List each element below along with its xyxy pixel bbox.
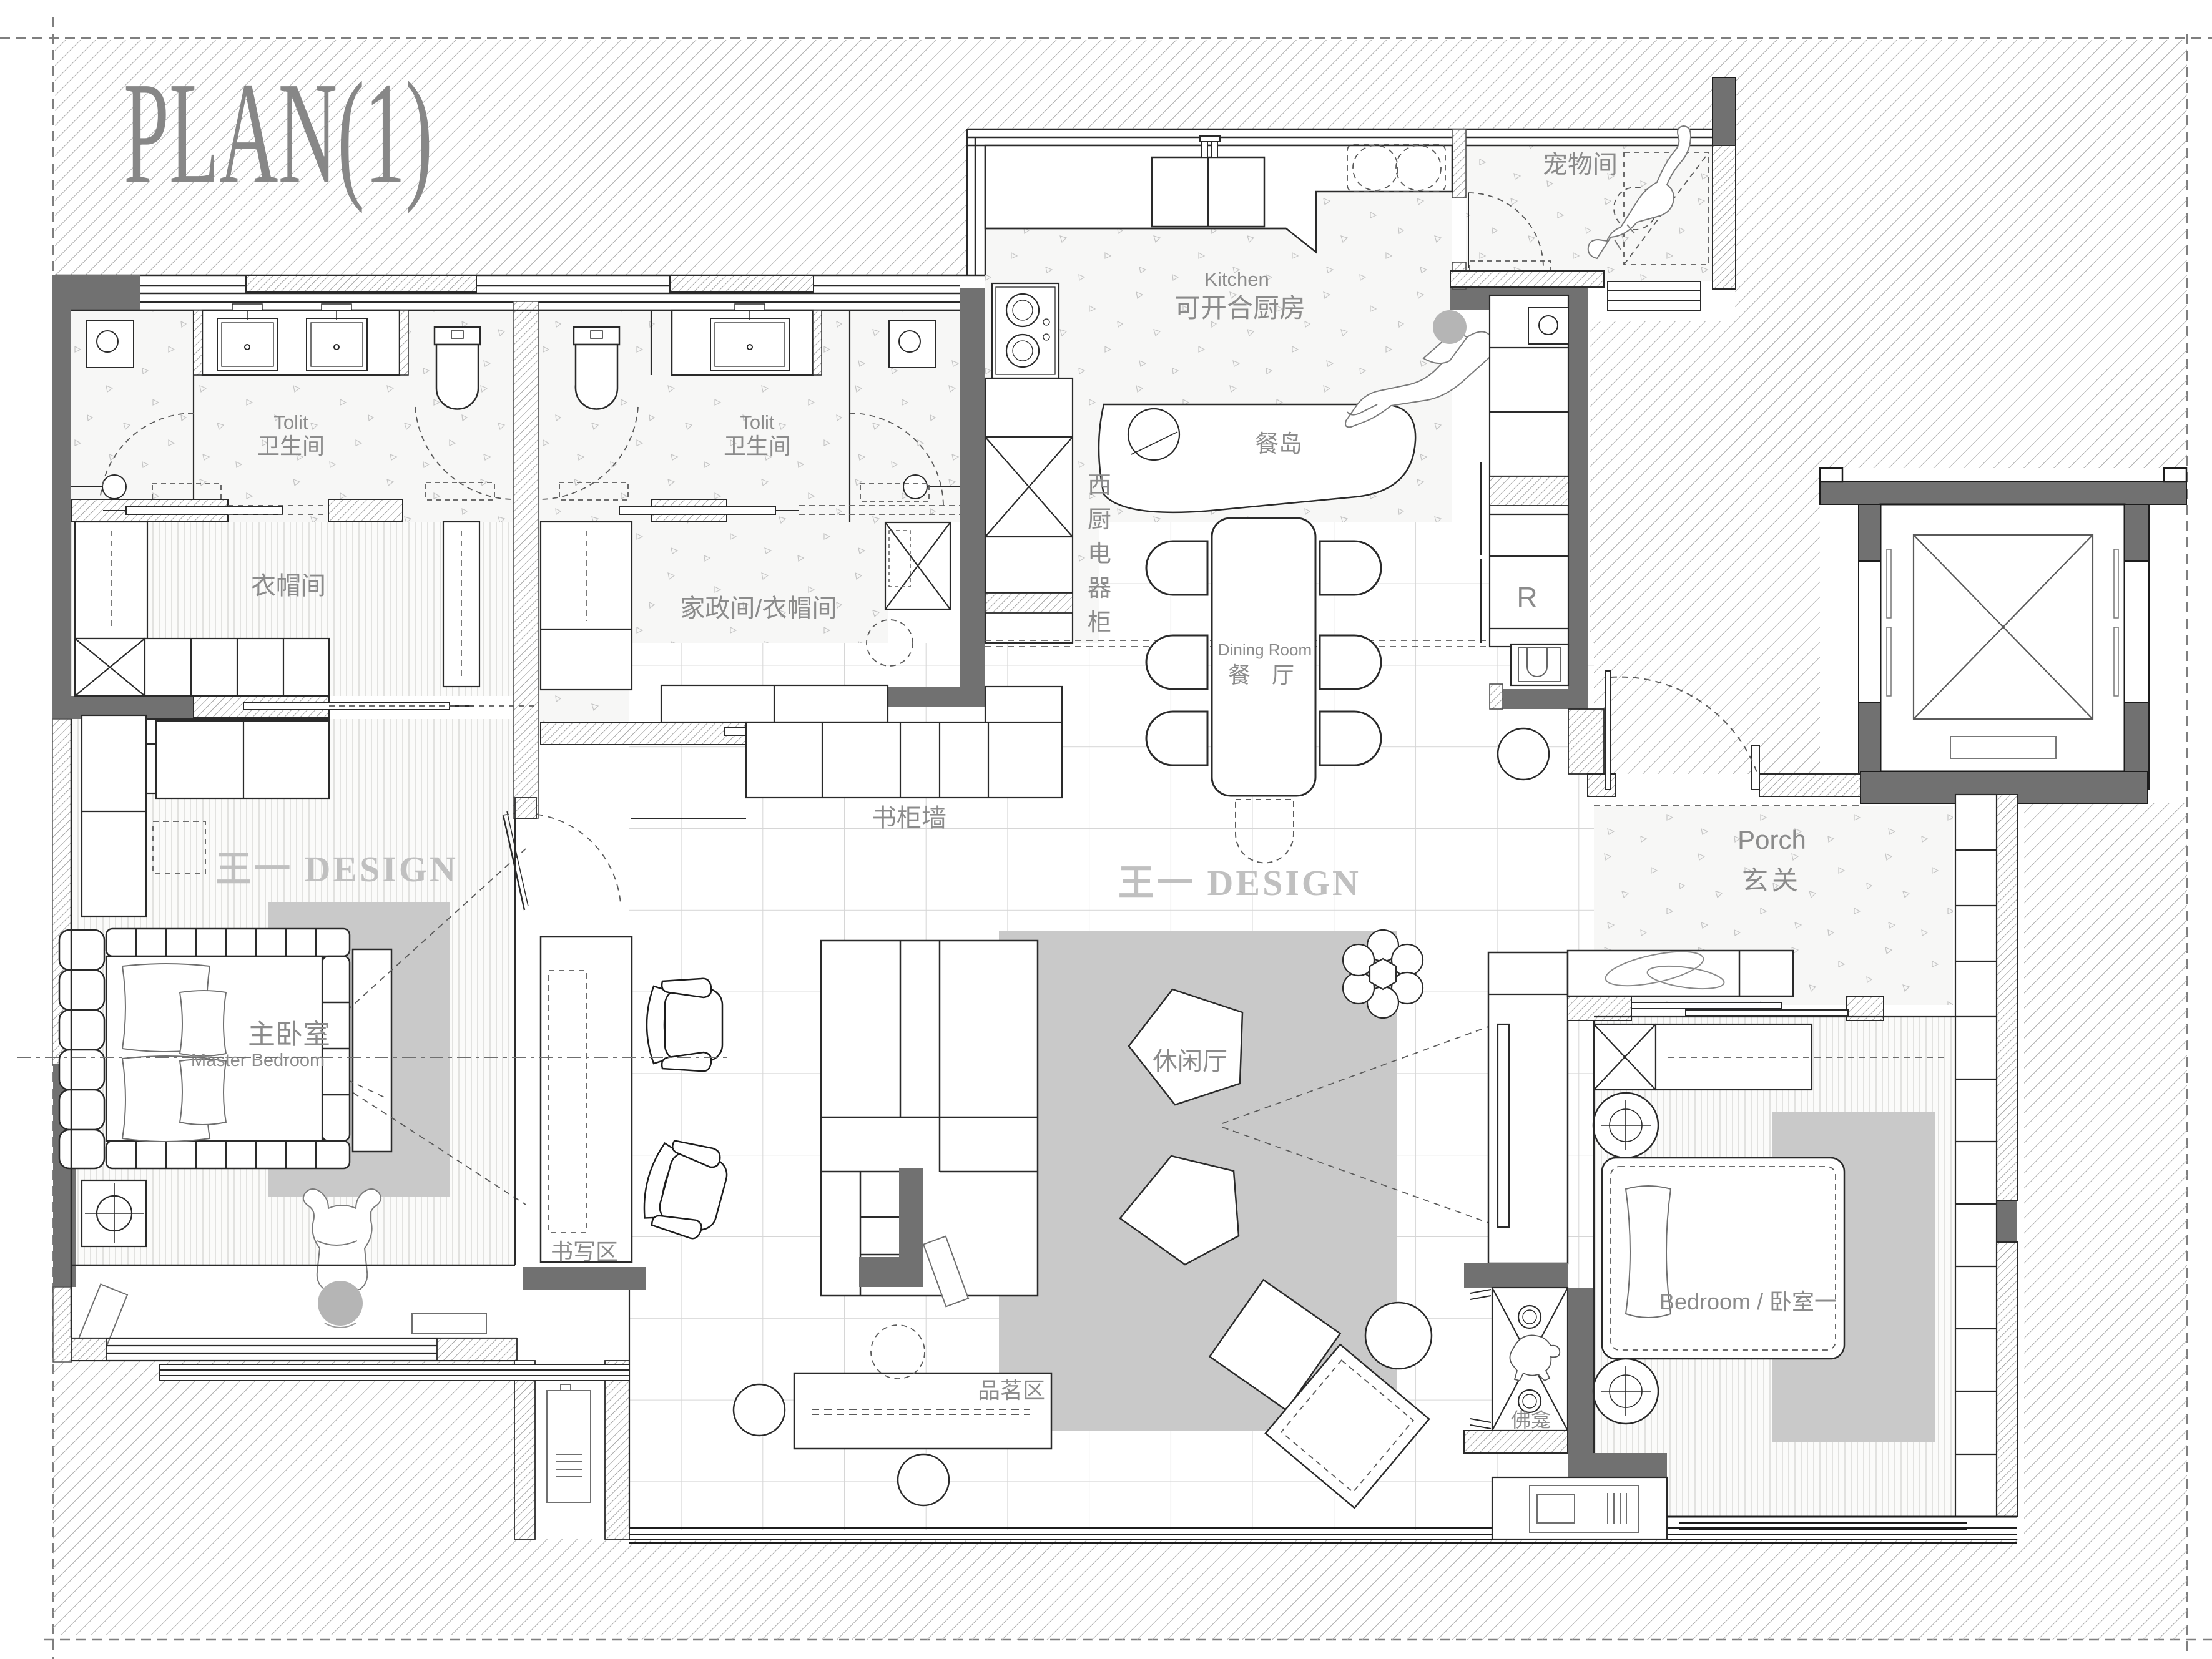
svg-text:餐 厅: 餐 厅 [1228, 662, 1302, 688]
svg-text:休闲厅: 休闲厅 [1153, 1048, 1227, 1075]
svg-text:Porch: Porch [1738, 825, 1806, 854]
svg-text:PLAN(1): PLAN(1) [124, 52, 433, 214]
svg-text:电: 电 [1088, 541, 1111, 567]
svg-text:王一 DESIGN: 王一 DESIGN [1118, 863, 1361, 903]
svg-text:厨: 厨 [1088, 507, 1111, 533]
svg-text:玄关: 玄关 [1742, 866, 1802, 895]
svg-text:R: R [1516, 581, 1537, 614]
svg-text:主卧室: 主卧室 [248, 1019, 330, 1050]
svg-text:家政间/衣帽间: 家政间/衣帽间 [680, 595, 837, 622]
svg-text:Bedroom / 卧室一: Bedroom / 卧室一 [1659, 1289, 1837, 1314]
svg-text:Tolit: Tolit [273, 411, 308, 433]
svg-text:可开合厨房: 可开合厨房 [1174, 293, 1305, 323]
svg-text:书写区: 书写区 [551, 1239, 618, 1265]
svg-text:书柜墙: 书柜墙 [872, 805, 946, 832]
svg-text:器: 器 [1088, 575, 1111, 602]
svg-text:Tolit: Tolit [740, 411, 775, 433]
svg-text:王一 DESIGN: 王一 DESIGN [215, 849, 458, 889]
svg-text:佛龛: 佛龛 [1511, 1409, 1551, 1431]
svg-text:柜: 柜 [1088, 610, 1111, 636]
svg-text:品茗区: 品茗区 [978, 1378, 1045, 1403]
svg-text:卫生间: 卫生间 [724, 433, 791, 459]
svg-text:衣帽间: 衣帽间 [251, 572, 326, 600]
svg-text:西: 西 [1088, 472, 1111, 499]
svg-text:宠物间: 宠物间 [1543, 151, 1618, 179]
svg-text:Kitchen: Kitchen [1204, 268, 1269, 290]
svg-text:卫生间: 卫生间 [257, 433, 325, 459]
svg-text:餐岛: 餐岛 [1255, 431, 1302, 458]
svg-text:Dining Room: Dining Room [1218, 640, 1312, 659]
svg-text:Master Bedroom: Master Bedroom [191, 1050, 325, 1070]
